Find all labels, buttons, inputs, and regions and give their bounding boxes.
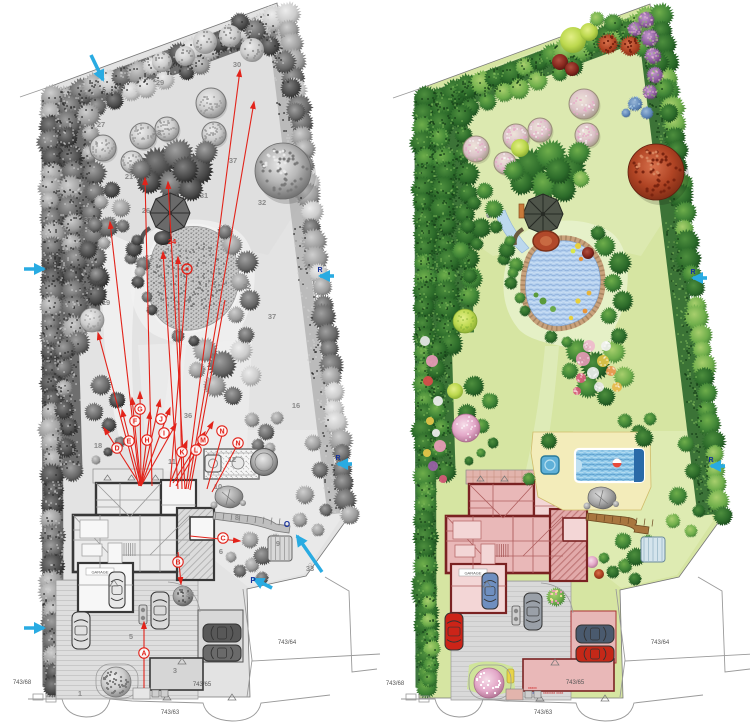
svg-text:xxxxxxx xxxx: xxxxxxx xxxx — [543, 691, 563, 695]
svg-text:743/64: 743/64 — [278, 640, 297, 646]
svg-text:743/65: 743/65 — [193, 682, 212, 688]
svg-text:37: 37 — [268, 312, 276, 321]
svg-text:GARAGE: GARAGE — [464, 571, 481, 576]
svg-text:J: J — [159, 416, 163, 423]
svg-text:16: 16 — [292, 401, 300, 410]
svg-text:28: 28 — [153, 128, 161, 137]
svg-text:21: 21 — [125, 172, 133, 181]
svg-text:24: 24 — [168, 237, 177, 246]
svg-text:743/65: 743/65 — [566, 680, 585, 686]
svg-text:xxxxx: xxxxx — [528, 686, 537, 690]
svg-text:I: I — [163, 430, 165, 437]
svg-text:743/63: 743/63 — [534, 710, 553, 716]
svg-text:34: 34 — [186, 590, 195, 599]
svg-text:37: 37 — [229, 156, 237, 165]
svg-text:P: P — [250, 576, 256, 585]
svg-text:N: N — [235, 440, 240, 447]
svg-text:G: G — [137, 406, 143, 413]
svg-text:8: 8 — [235, 513, 239, 522]
svg-text:29: 29 — [156, 78, 164, 87]
svg-text:C: C — [220, 535, 225, 542]
svg-text:18: 18 — [94, 441, 102, 450]
svg-text:19: 19 — [102, 298, 110, 307]
svg-text:743/68: 743/68 — [386, 681, 405, 687]
svg-text:R: R — [317, 267, 322, 274]
svg-text:R: R — [690, 269, 695, 276]
svg-text:37: 37 — [84, 215, 92, 224]
svg-text:743/68: 743/68 — [13, 680, 32, 686]
svg-text:D: D — [114, 445, 119, 452]
svg-text:743/64: 743/64 — [651, 640, 670, 646]
svg-text:36: 36 — [184, 411, 192, 420]
svg-text:GARAGE: GARAGE — [91, 570, 108, 575]
svg-text:E: E — [127, 438, 132, 445]
svg-text:743/63: 743/63 — [161, 710, 180, 716]
svg-text:⌂: ⌂ — [308, 562, 312, 568]
svg-text:31: 31 — [200, 191, 208, 200]
svg-text:32: 32 — [258, 198, 266, 207]
svg-text:6: 6 — [219, 547, 223, 556]
svg-text:L: L — [194, 447, 199, 454]
svg-text:22: 22 — [243, 282, 251, 291]
svg-text:R: R — [335, 455, 340, 462]
svg-text:B: B — [175, 559, 180, 566]
svg-text:27: 27 — [97, 120, 105, 129]
svg-text:H: H — [144, 437, 149, 444]
svg-text:5: 5 — [129, 632, 133, 641]
svg-text:A: A — [141, 650, 146, 657]
svg-text:R: R — [708, 457, 713, 464]
svg-text:1: 1 — [78, 689, 82, 698]
svg-text:O: O — [284, 520, 290, 529]
svg-text:30: 30 — [233, 60, 241, 69]
svg-text:3: 3 — [173, 666, 177, 675]
svg-text:9: 9 — [276, 539, 280, 548]
svg-text:F: F — [133, 418, 138, 425]
svg-text:25: 25 — [107, 215, 115, 224]
svg-text:K: K — [179, 449, 184, 456]
svg-text:N: N — [219, 428, 224, 435]
svg-text:23: 23 — [145, 253, 153, 262]
svg-text:M: M — [200, 437, 206, 444]
